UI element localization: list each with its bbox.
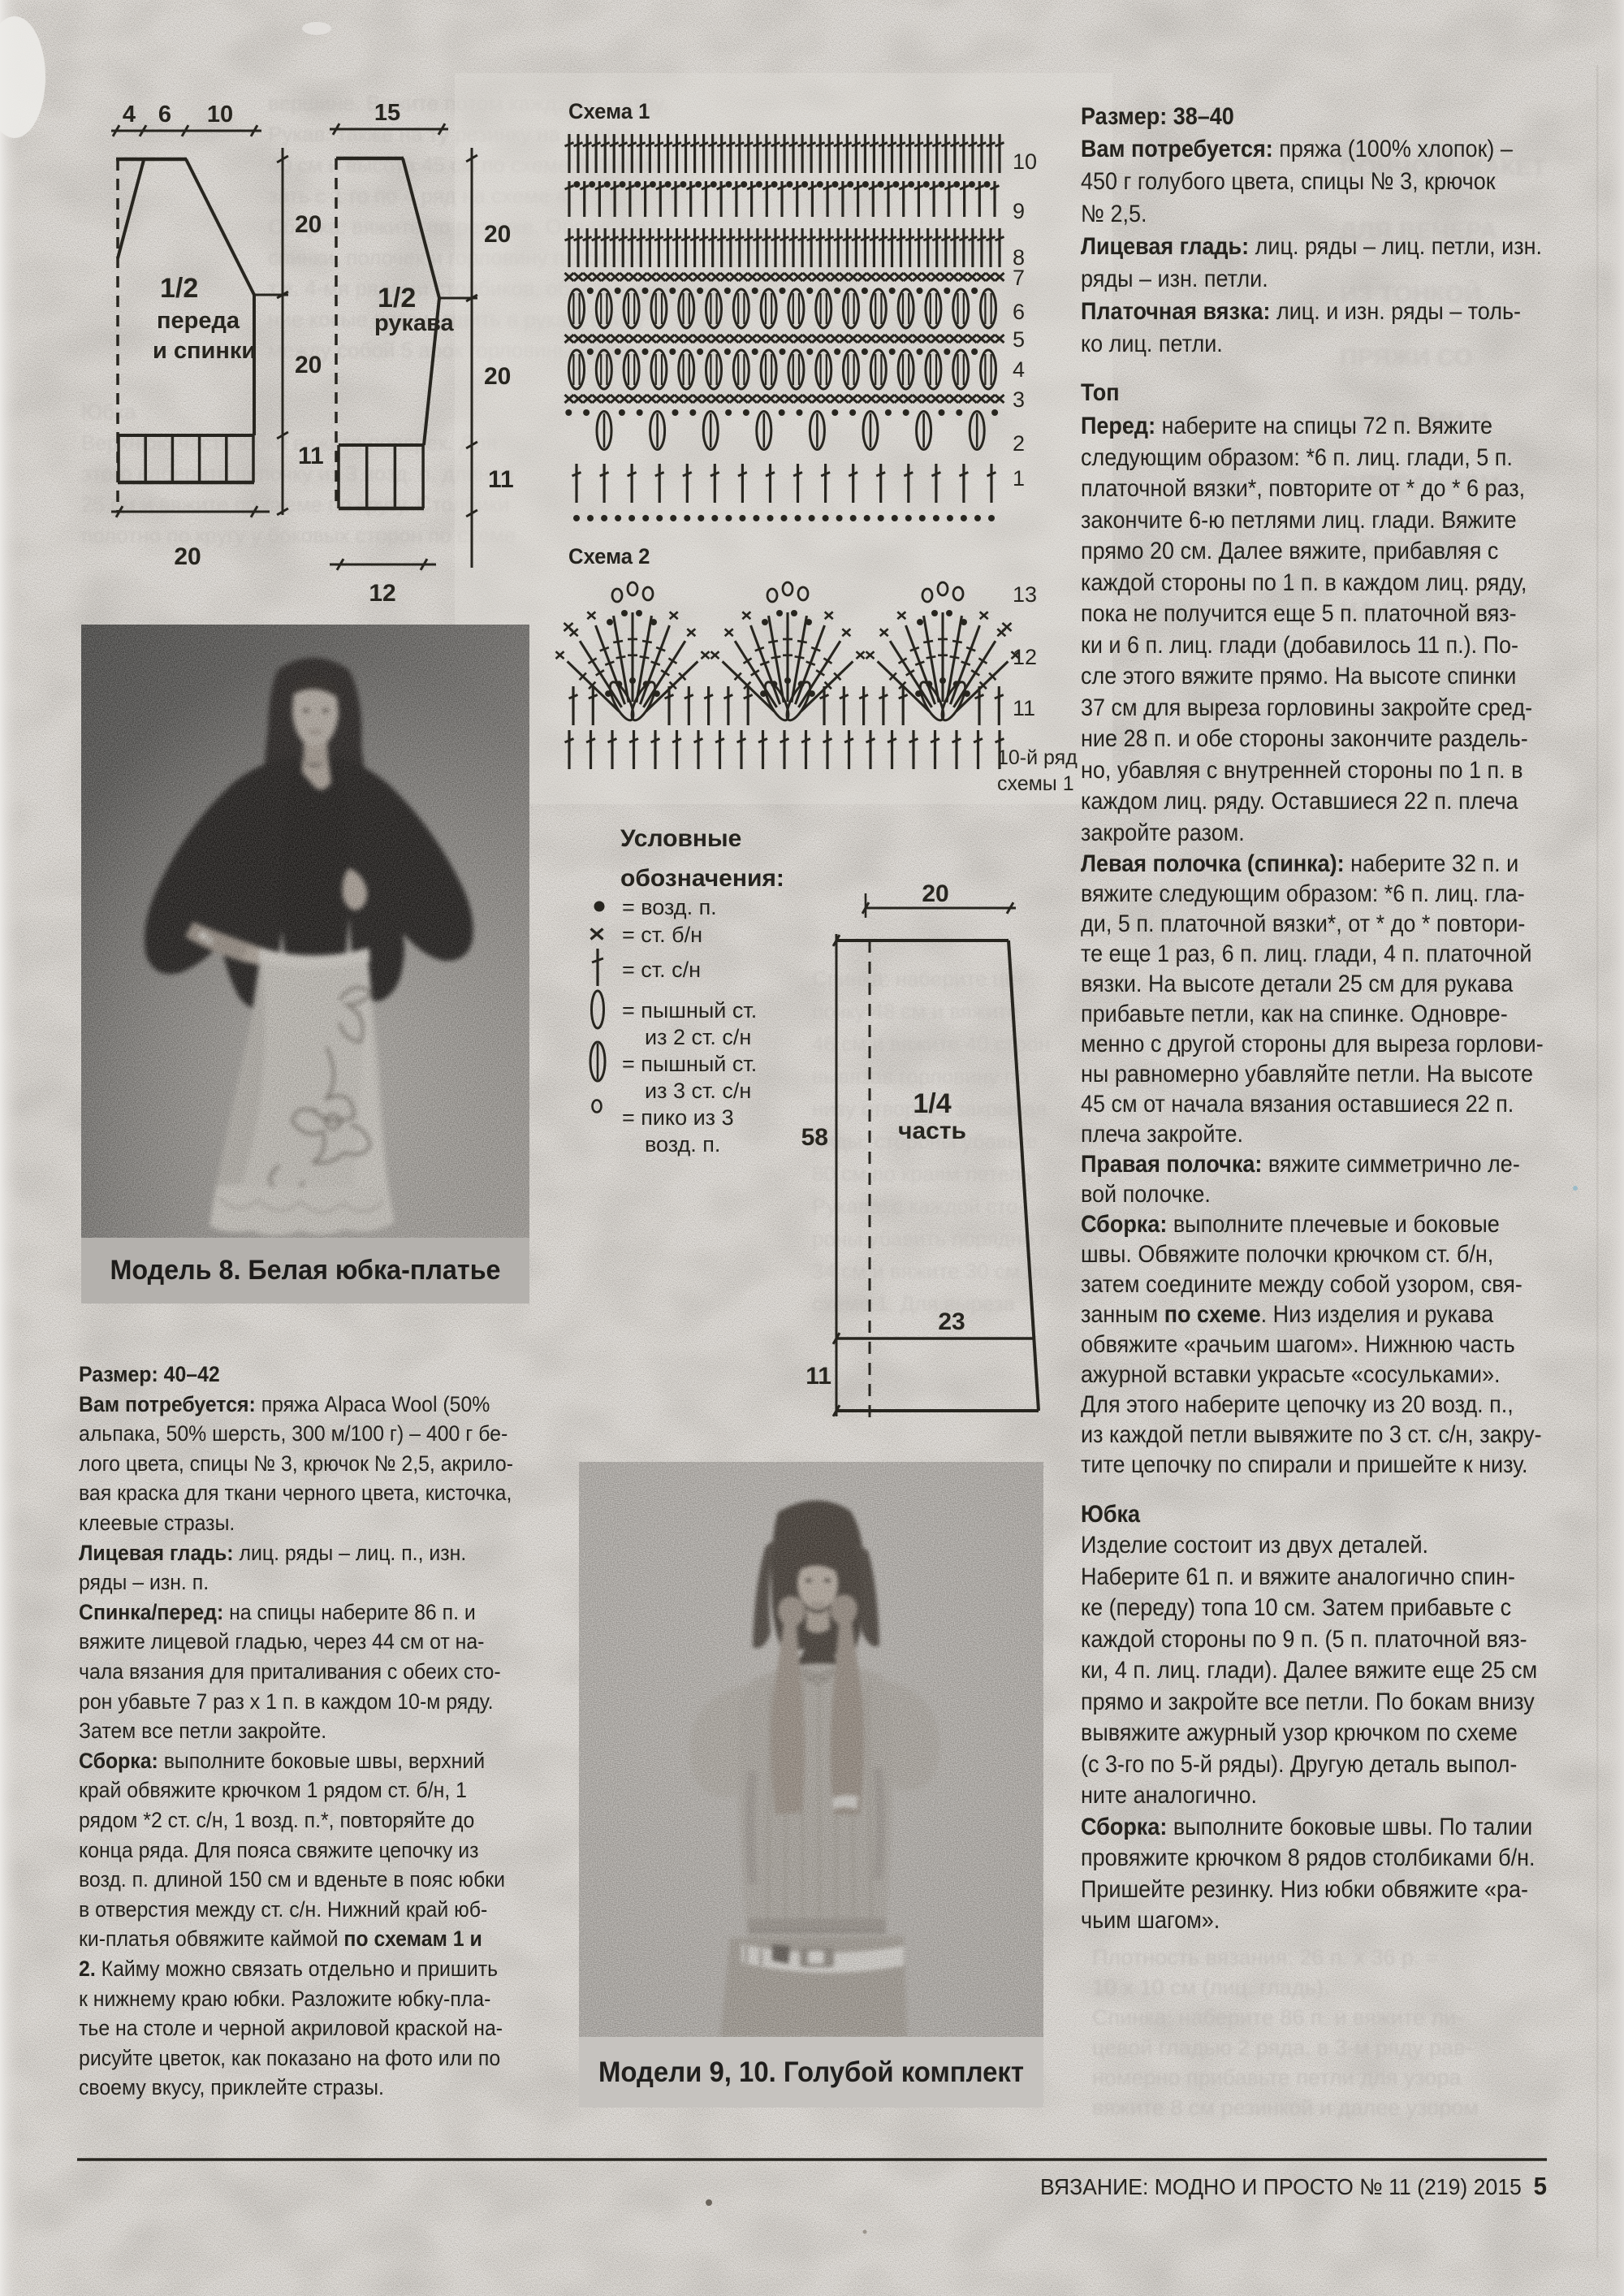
- svg-text:12: 12: [369, 580, 395, 607]
- svg-text:5: 5: [1013, 327, 1025, 352]
- svg-text:58: 58: [801, 1124, 828, 1151]
- svg-text:схемы 1: схемы 1: [997, 772, 1074, 795]
- svg-text:и спинки: и спинки: [153, 338, 256, 364]
- svg-text:11: 11: [298, 443, 324, 469]
- svg-text:9: 9: [1013, 199, 1025, 223]
- svg-text:7: 7: [1013, 266, 1025, 290]
- svg-text:6: 6: [158, 102, 171, 128]
- svg-text:20: 20: [174, 543, 201, 570]
- svg-text:2: 2: [1013, 431, 1025, 456]
- svg-text:11: 11: [806, 1363, 831, 1390]
- svg-text:рукава: рукава: [374, 310, 455, 336]
- svg-text:20: 20: [295, 352, 322, 378]
- svg-text:20: 20: [295, 211, 322, 238]
- svg-text:23: 23: [938, 1308, 965, 1335]
- svg-text:переда: переда: [157, 308, 240, 334]
- svg-text:13: 13: [1013, 582, 1037, 607]
- svg-text:10: 10: [1013, 149, 1037, 174]
- svg-text:15: 15: [374, 100, 400, 126]
- svg-text:4: 4: [1013, 357, 1025, 382]
- svg-text:6: 6: [1013, 300, 1025, 324]
- svg-text:3: 3: [1013, 387, 1025, 412]
- svg-text:1/2: 1/2: [378, 283, 416, 313]
- svg-text:10-й ряд: 10-й ряд: [997, 746, 1078, 769]
- svg-text:20: 20: [484, 363, 511, 390]
- svg-text:20: 20: [484, 221, 511, 248]
- svg-text:1: 1: [1013, 466, 1025, 491]
- svg-text:10: 10: [207, 102, 233, 128]
- svg-text:4: 4: [123, 102, 136, 128]
- svg-text:11: 11: [1013, 696, 1035, 720]
- svg-text:11: 11: [488, 466, 514, 493]
- svg-text:часть: часть: [898, 1118, 966, 1144]
- svg-text:1/4: 1/4: [913, 1088, 951, 1119]
- svg-text:12: 12: [1013, 645, 1037, 669]
- svg-text:1/2: 1/2: [160, 273, 198, 304]
- svg-text:20: 20: [922, 880, 948, 907]
